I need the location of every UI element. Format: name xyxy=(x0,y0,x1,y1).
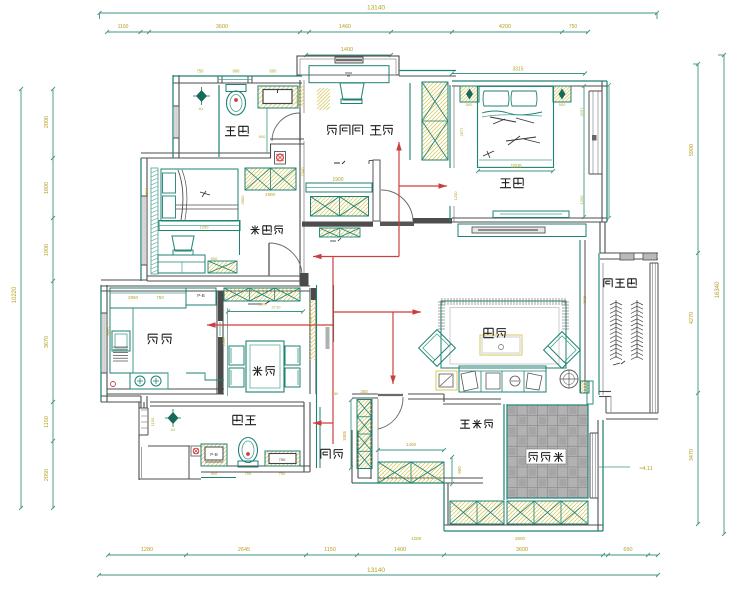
svg-text:650: 650 xyxy=(623,547,632,553)
svg-text:1400: 1400 xyxy=(406,442,417,447)
svg-text:900: 900 xyxy=(457,466,462,474)
svg-text:16340: 16340 xyxy=(715,281,721,298)
svg-text:1400: 1400 xyxy=(341,47,353,53)
svg-text:3315: 3315 xyxy=(512,67,523,73)
svg-text:4270: 4270 xyxy=(689,312,695,324)
svg-text:2340: 2340 xyxy=(300,167,305,177)
svg-text:1150: 1150 xyxy=(44,416,50,428)
svg-text:350: 350 xyxy=(360,389,368,394)
svg-text:1150: 1150 xyxy=(150,417,155,426)
svg-text:500: 500 xyxy=(466,102,473,107)
svg-text:750: 750 xyxy=(156,295,164,300)
svg-text:P-B: P-B xyxy=(197,293,205,298)
svg-text:2977: 2977 xyxy=(459,127,464,137)
svg-text:900: 900 xyxy=(308,316,313,323)
svg-text:600: 600 xyxy=(211,256,218,261)
svg-text:13140: 13140 xyxy=(367,5,385,12)
svg-text:750: 750 xyxy=(279,471,286,476)
svg-text:1200: 1200 xyxy=(579,195,584,205)
svg-text:3670: 3670 xyxy=(44,336,50,348)
svg-text:2850: 2850 xyxy=(128,295,139,300)
svg-text:1100: 1100 xyxy=(118,24,129,30)
svg-text:900: 900 xyxy=(211,471,218,476)
svg-text:900: 900 xyxy=(233,69,241,74)
svg-text:4200: 4200 xyxy=(499,24,511,30)
svg-text:1208: 1208 xyxy=(411,536,422,541)
svg-text:2600: 2600 xyxy=(515,536,526,541)
svg-text:≈4.11: ≈4.11 xyxy=(639,466,652,472)
svg-text:13140: 13140 xyxy=(367,567,385,574)
svg-text:2710: 2710 xyxy=(272,305,282,310)
svg-text:1500: 1500 xyxy=(221,337,226,347)
svg-text:1800: 1800 xyxy=(44,182,50,194)
svg-text:2850: 2850 xyxy=(106,327,111,337)
svg-text:1500: 1500 xyxy=(510,164,521,170)
svg-text:10220: 10220 xyxy=(12,286,18,303)
svg-text:1900: 1900 xyxy=(332,177,343,183)
svg-text:2525: 2525 xyxy=(582,295,587,305)
svg-text:1280: 1280 xyxy=(141,547,153,553)
svg-text:350: 350 xyxy=(332,391,339,396)
svg-text:5900: 5900 xyxy=(689,144,695,156)
svg-text:900: 900 xyxy=(259,134,266,139)
svg-text:3600: 3600 xyxy=(216,24,228,30)
svg-text:3297: 3297 xyxy=(579,107,584,117)
svg-text:500: 500 xyxy=(559,102,566,107)
svg-text:700: 700 xyxy=(245,471,252,476)
svg-text:3470: 3470 xyxy=(689,449,695,461)
svg-text:1600: 1600 xyxy=(258,302,268,307)
svg-text:1460: 1460 xyxy=(339,24,351,30)
svg-text:2800: 2800 xyxy=(240,195,245,205)
svg-text:1200: 1200 xyxy=(200,225,210,230)
svg-text:1400: 1400 xyxy=(394,547,406,553)
svg-text:1005: 1005 xyxy=(342,430,347,441)
svg-text:2645: 2645 xyxy=(238,547,250,553)
svg-text:600: 600 xyxy=(270,69,278,74)
svg-text:1150: 1150 xyxy=(324,547,336,553)
svg-text:750: 750 xyxy=(569,24,578,30)
svg-text:1200: 1200 xyxy=(453,191,458,201)
svg-text:750: 750 xyxy=(197,69,205,74)
svg-text:750: 750 xyxy=(279,457,286,462)
svg-text:3600: 3600 xyxy=(516,547,528,553)
svg-text:2050: 2050 xyxy=(44,469,50,481)
svg-text:1900: 1900 xyxy=(265,192,276,197)
svg-text:#1: #1 xyxy=(199,106,204,111)
svg-text:P-B: P-B xyxy=(210,452,218,457)
svg-text:2000: 2000 xyxy=(44,116,50,128)
svg-text:1900: 1900 xyxy=(44,244,50,256)
svg-text:#1: #1 xyxy=(171,427,176,432)
svg-text:1500: 1500 xyxy=(144,187,149,197)
